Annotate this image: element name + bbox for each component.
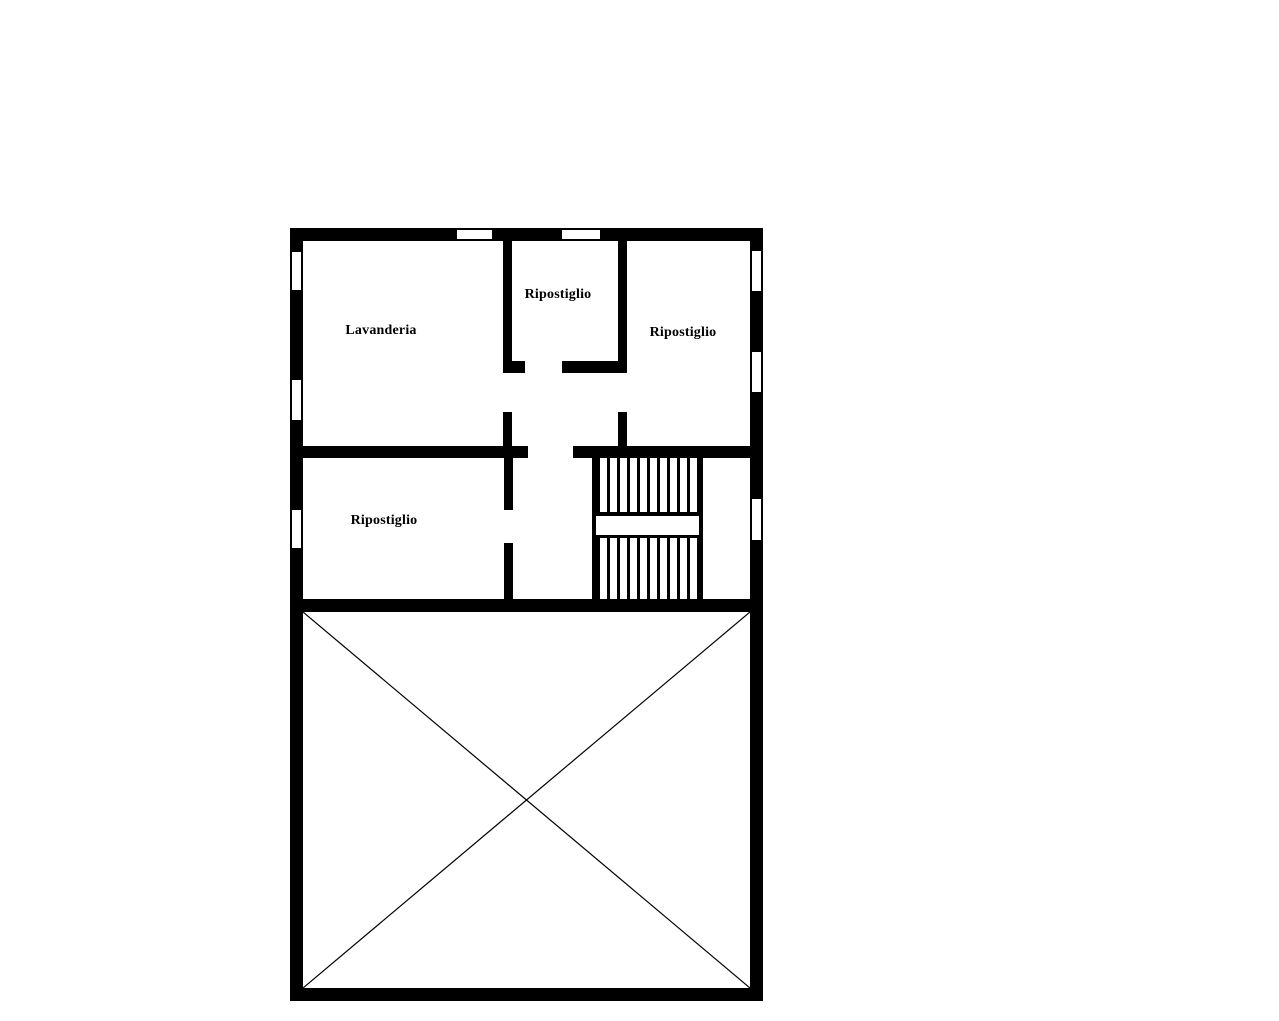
wall-ripostiglio-lower-right-upper <box>504 458 513 510</box>
room-label-ripostiglio-top-middle: Ripostiglio <box>525 287 592 303</box>
window-right-2 <box>752 352 761 392</box>
staircase-landing <box>592 512 703 539</box>
wall-outer-bottom <box>290 988 763 1001</box>
room-label-ripostiglio-lower-left: Ripostiglio <box>351 513 418 529</box>
cross-marked-area <box>303 612 750 988</box>
window-top-2 <box>562 230 600 239</box>
wall-outer-right-lower <box>750 599 763 1001</box>
window-right-3 <box>752 499 761 540</box>
window-right-1 <box>752 251 761 291</box>
wall-outer-top <box>290 228 763 241</box>
window-left-2 <box>292 380 301 420</box>
wall-ripostiglio-lower-right-lower <box>504 543 513 599</box>
staircase-lower-flight <box>592 538 703 599</box>
wall-mid-band <box>290 599 763 612</box>
staircase-upper-flight <box>592 458 703 512</box>
floor-plan: Lavanderia Ripostiglio Ripostiglio Ripos… <box>0 0 1279 1021</box>
window-top-1 <box>457 230 492 239</box>
window-left-1 <box>292 252 301 290</box>
room-label-lavanderia: Lavanderia <box>345 323 416 339</box>
wall-ripostiglio-middle-bottom-left <box>503 361 525 373</box>
wall-lavanderia-right <box>503 240 512 373</box>
window-left-3 <box>292 510 301 548</box>
wall-divider-left <box>290 446 528 458</box>
room-label-ripostiglio-top-right: Ripostiglio <box>650 325 717 341</box>
floor-plan-page: Lavanderia Ripostiglio Ripostiglio Ripos… <box>0 0 1279 1021</box>
wall-ripostiglio-right-left <box>618 240 627 373</box>
wall-divider-right <box>573 446 763 458</box>
wall-outer-left-lower <box>290 599 303 1001</box>
